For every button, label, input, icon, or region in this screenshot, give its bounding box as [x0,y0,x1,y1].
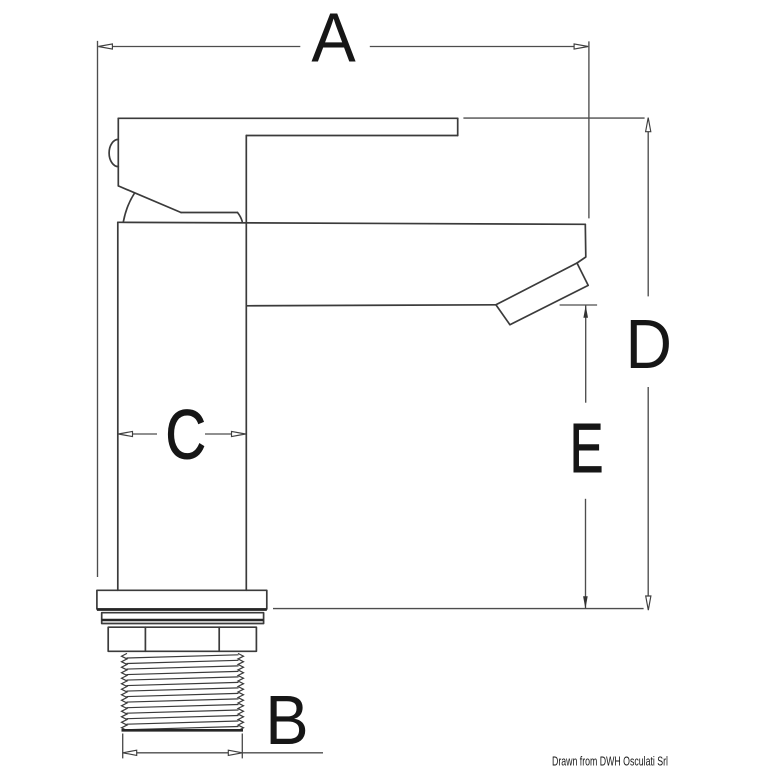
svg-text:E: E [570,409,604,487]
svg-text:Drawn from DWH Osculati Srl: Drawn from DWH Osculati Srl [552,754,668,769]
svg-text:B: B [265,682,308,760]
svg-text:C: C [165,397,205,474]
svg-text:D: D [626,306,673,384]
svg-text:A: A [311,0,356,77]
